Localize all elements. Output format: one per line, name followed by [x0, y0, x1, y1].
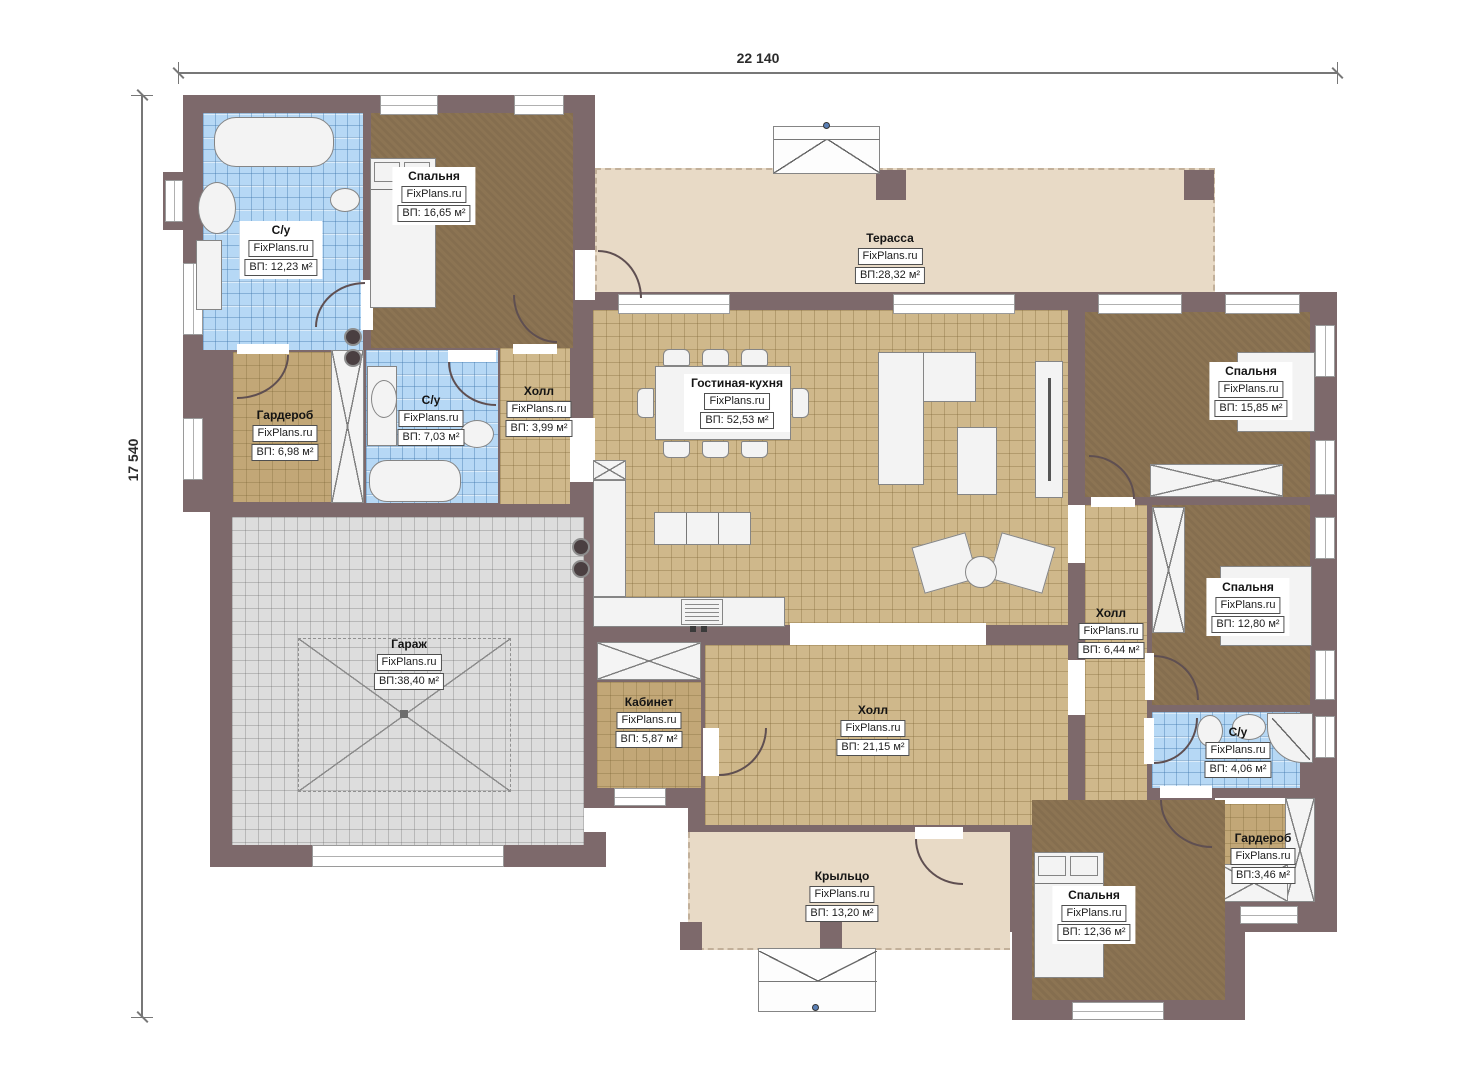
room-area: ВП: 3,99 м² [505, 420, 572, 437]
window [1315, 440, 1335, 495]
room-watermark: FixPlans.ru [1230, 848, 1295, 865]
door-opening [575, 250, 595, 300]
room-label-bedroom-2: Спальня FixPlans.ru ВП: 15,85 м² [1209, 362, 1292, 420]
room-area: ВП:28,32 м² [855, 267, 925, 284]
door-opening [1144, 718, 1154, 764]
kitchen-sink [681, 599, 723, 625]
door-opening [915, 827, 963, 839]
exterior-cutout [573, 808, 688, 832]
room-area: ВП: 12,23 м² [244, 259, 317, 276]
terrace-column [876, 170, 906, 200]
floor-plan-canvas: 22 140 17 540 [0, 0, 1474, 1080]
room-label-living-kitchen: Гостиная-кухня FixPlans.ru ВП: 52,53 м² [684, 374, 790, 432]
window [514, 95, 564, 115]
room-label-bath-3: С/у FixPlans.ru ВП: 4,06 м² [1199, 723, 1276, 781]
dining-chair [702, 349, 729, 366]
dining-chair [663, 349, 690, 366]
porch-column [820, 922, 842, 950]
tv-stand [1035, 361, 1063, 498]
room-label-bedroom-3: Спальня FixPlans.ru ВП: 12,80 м² [1206, 578, 1289, 636]
room-watermark: FixPlans.ru [857, 248, 922, 265]
canopy-line [774, 139, 827, 173]
pillow [1038, 856, 1066, 876]
bathtub [369, 460, 461, 502]
dimension-line-left [141, 95, 143, 1018]
room-name: Гараж [374, 637, 444, 652]
window [165, 180, 183, 222]
room-area: ВП: 12,80 м² [1211, 616, 1284, 633]
kitchen-appliance [593, 460, 626, 480]
window [1098, 294, 1182, 314]
door-opening [237, 344, 289, 354]
room-name: С/у [397, 393, 464, 408]
room-name: Кабинет [615, 695, 682, 710]
dining-chair [637, 388, 654, 418]
shower-line [1272, 718, 1310, 760]
dimension-line-top [178, 72, 1338, 74]
porch-column [680, 922, 702, 950]
room-watermark: FixPlans.ru [809, 886, 874, 903]
bathtub [214, 117, 334, 167]
window [1225, 294, 1300, 314]
steps-marker [812, 1004, 819, 1011]
bathroom-cabinet [196, 240, 222, 310]
room-area: ВП: 4,06 м² [1204, 761, 1271, 778]
room-watermark: FixPlans.ru [248, 240, 313, 257]
room-watermark: FixPlans.ru [840, 720, 905, 737]
room-name: Гардероб [251, 408, 318, 423]
terrace-column [1184, 170, 1214, 200]
pillow [1070, 856, 1098, 876]
room-area: ВП: 16,65 м² [397, 205, 470, 222]
sofa [878, 352, 924, 485]
room-label-wardrobe-1: Гардероб FixPlans.ru ВП: 6,98 м² [246, 406, 323, 464]
room-label-bath-1: С/у FixPlans.ru ВП: 12,23 м² [239, 221, 322, 279]
room-area: ВП: 13,20 м² [805, 905, 878, 922]
room-area: ВП: 52,53 м² [700, 412, 773, 429]
room-area: ВП: 6,98 м² [251, 444, 318, 461]
room-name: Спальня [1057, 888, 1130, 903]
garage-door [312, 845, 504, 867]
room-label-bath-2: С/у FixPlans.ru ВП: 7,03 м² [392, 391, 469, 449]
dimension-extension [131, 1017, 153, 1018]
room-name: Холл [836, 703, 909, 718]
steps-line [818, 951, 877, 981]
closet [597, 642, 701, 680]
room-name: Гостиная-кухня [689, 376, 785, 391]
window [1072, 1002, 1164, 1020]
entry-steps [758, 948, 876, 1012]
room-label-bedroom-4: Спальня FixPlans.ru ВП: 12,36 м² [1052, 886, 1135, 944]
room-name: С/у [1204, 725, 1271, 740]
room-label-hall-2: Холл FixPlans.ru ВП: 6,44 м² [1072, 604, 1149, 662]
wall-opening [1068, 505, 1085, 563]
canopy-marker [823, 122, 830, 129]
canopy-symbol [773, 126, 880, 174]
window [614, 788, 666, 806]
room-name: Спальня [1214, 364, 1287, 379]
room-name: Холл [505, 384, 572, 399]
window [1315, 325, 1335, 377]
dining-chair [702, 441, 729, 458]
window [1315, 650, 1335, 700]
steps-line [759, 981, 877, 982]
wall-opening [1068, 660, 1085, 715]
room-name: Гардероб [1230, 831, 1295, 846]
room-label-porch: Крыльцо FixPlans.ru ВП: 13,20 м² [800, 867, 883, 925]
room-name: С/у [244, 223, 317, 238]
door-opening [513, 344, 557, 354]
wall-opening [790, 623, 986, 645]
washer-icon [344, 328, 362, 346]
kitchen-counter [593, 480, 626, 597]
garage-center-mark [400, 710, 408, 718]
window [1315, 517, 1335, 559]
room-area: ВП:38,40 м² [374, 673, 444, 690]
room-area: ВП:3,46 м² [1231, 867, 1295, 884]
room-watermark: FixPlans.ru [376, 654, 441, 671]
room-watermark: FixPlans.ru [1215, 597, 1280, 614]
dimension-extension [131, 95, 153, 96]
window [893, 294, 1015, 314]
room-watermark: FixPlans.ru [1078, 623, 1143, 640]
door-opening [703, 728, 719, 776]
room-watermark: FixPlans.ru [616, 712, 681, 729]
room-area: ВП: 12,36 м² [1057, 924, 1130, 941]
side-table [965, 556, 997, 588]
room-watermark: FixPlans.ru [401, 186, 466, 203]
dining-chair [792, 388, 809, 418]
room-watermark: FixPlans.ru [704, 393, 769, 410]
kitchen-island [654, 512, 751, 545]
room-area: ВП: 7,03 м² [397, 429, 464, 446]
bed-line [1035, 883, 1103, 884]
island-divider [718, 513, 719, 544]
room-label-hall-3: Холл FixPlans.ru ВП: 21,15 м² [831, 701, 914, 759]
room-watermark: FixPlans.ru [1218, 381, 1283, 398]
room-name: Спальня [397, 169, 470, 184]
room-area: ВП: 6,44 м² [1077, 642, 1144, 659]
canopy-line [827, 139, 880, 173]
room-watermark: FixPlans.ru [1061, 905, 1126, 922]
stove-burner [572, 538, 590, 556]
room-label-cabinet: Кабинет FixPlans.ru ВП: 5,87 м² [610, 693, 687, 751]
room-label-terrace: Терасса FixPlans.ru ВП:28,32 м² [850, 229, 930, 287]
window [1315, 716, 1335, 758]
toilet [330, 188, 360, 212]
room-label-wardrobe-2: Гардероб FixPlans.ru ВП:3,46 м² [1225, 829, 1300, 887]
sink-dot [701, 626, 707, 632]
sink [198, 182, 236, 234]
stove-burner [572, 560, 590, 578]
island-divider [686, 513, 687, 544]
room-watermark: FixPlans.ru [1205, 742, 1270, 759]
room-name: Спальня [1211, 580, 1284, 595]
door-opening [448, 350, 496, 362]
dimension-height-label: 17 540 [125, 439, 141, 482]
closet [331, 350, 364, 503]
room-name: Крыльцо [805, 869, 878, 884]
closet [1150, 464, 1283, 497]
steps-line [759, 951, 818, 981]
dining-chair [663, 441, 690, 458]
coffee-table [957, 427, 997, 495]
dining-chair [741, 441, 768, 458]
room-watermark: FixPlans.ru [398, 410, 463, 427]
door-opening [1160, 786, 1212, 798]
room-name: Холл [1077, 606, 1144, 621]
room-watermark: FixPlans.ru [252, 425, 317, 442]
room-area: ВП: 21,15 м² [836, 739, 909, 756]
room-name: Терасса [855, 231, 925, 246]
room-label-bedroom-1: Спальня FixPlans.ru ВП: 16,65 м² [392, 167, 475, 225]
dimension-width-label: 22 140 [737, 50, 780, 66]
closet [1152, 507, 1185, 633]
room-label-hall-1: Холл FixPlans.ru ВП: 3,99 м² [500, 382, 577, 440]
dimension-extension [1337, 62, 1338, 84]
washer-icon [344, 349, 362, 367]
sink-dot [690, 626, 696, 632]
dining-chair [741, 349, 768, 366]
room-label-garage: Гараж FixPlans.ru ВП:38,40 м² [369, 635, 449, 693]
room-watermark: FixPlans.ru [506, 401, 571, 418]
room-area: ВП: 15,85 м² [1214, 400, 1287, 417]
window [1240, 906, 1298, 924]
dimension-extension [178, 62, 179, 84]
room-area: ВП: 5,87 м² [615, 731, 682, 748]
tv [1048, 378, 1051, 481]
window [380, 95, 438, 115]
canopy-line [774, 139, 880, 140]
window [183, 418, 203, 480]
